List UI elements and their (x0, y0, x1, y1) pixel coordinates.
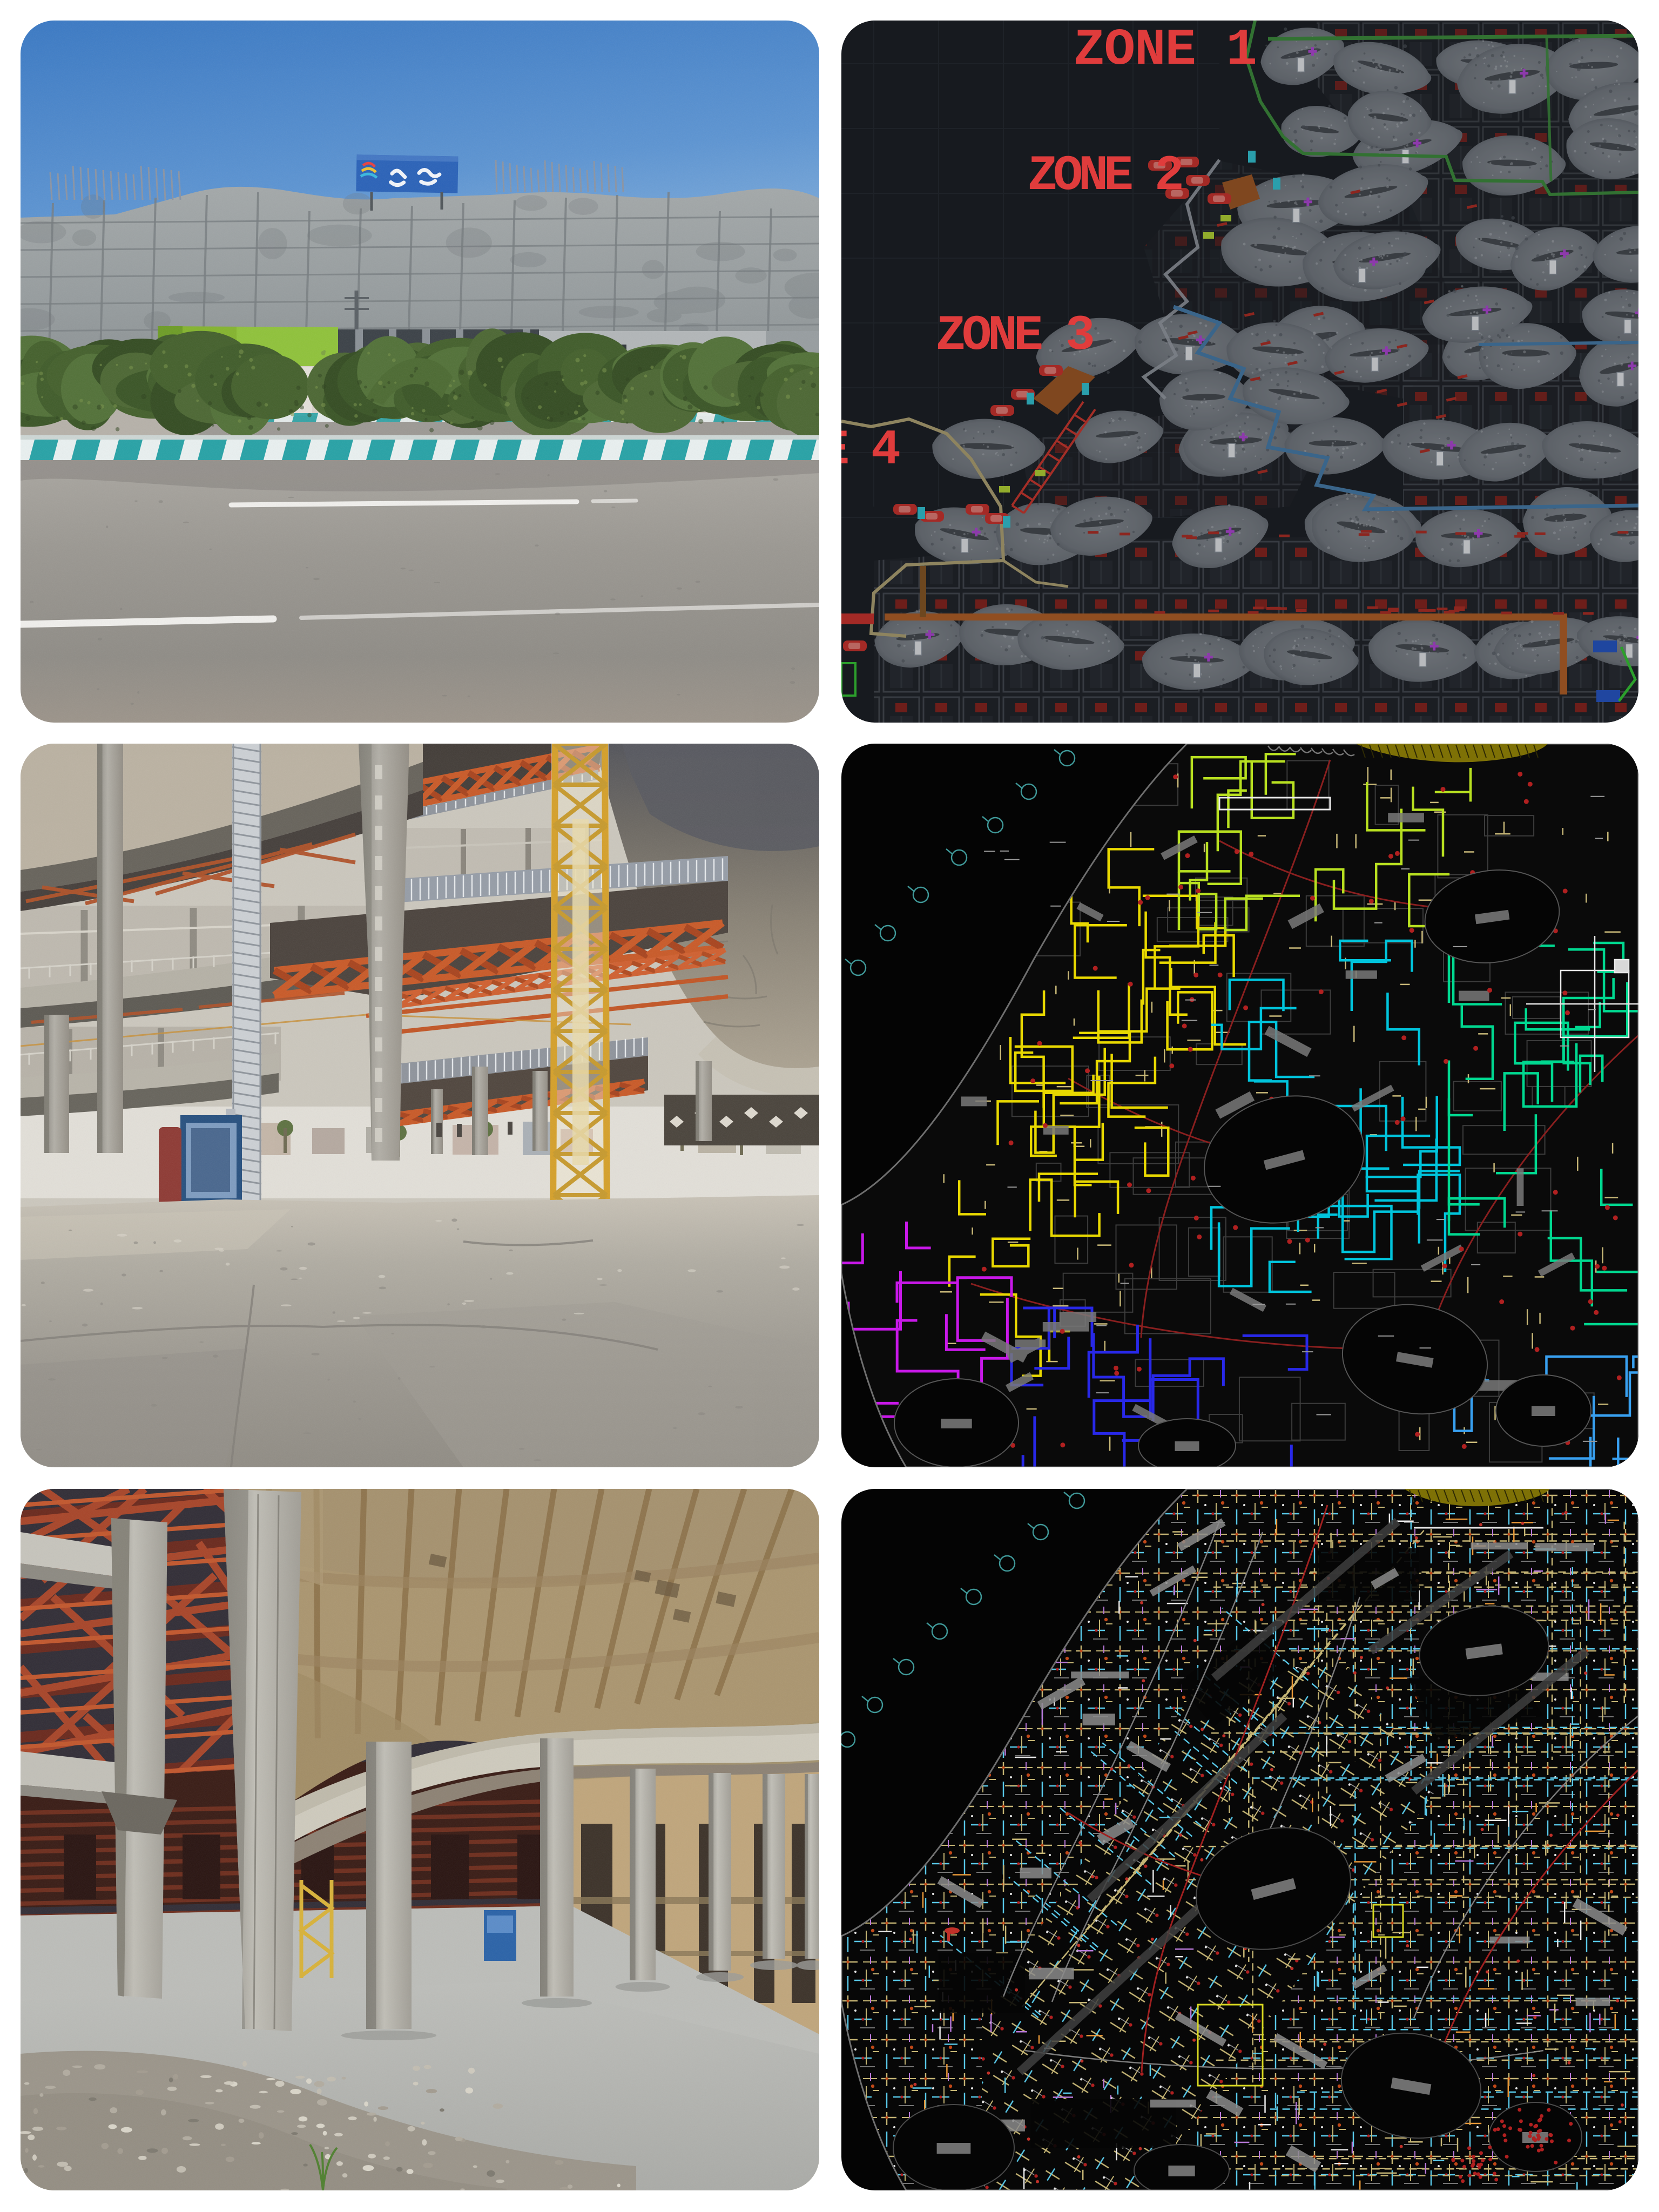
svg-text:E 4: E 4 (841, 422, 901, 478)
svg-text:ZONE 2: ZONE 2 (1028, 147, 1184, 204)
svg-text:ZONE 3: ZONE 3 (936, 307, 1095, 364)
svg-text:ZONE 1: ZONE 1 (1074, 21, 1257, 79)
